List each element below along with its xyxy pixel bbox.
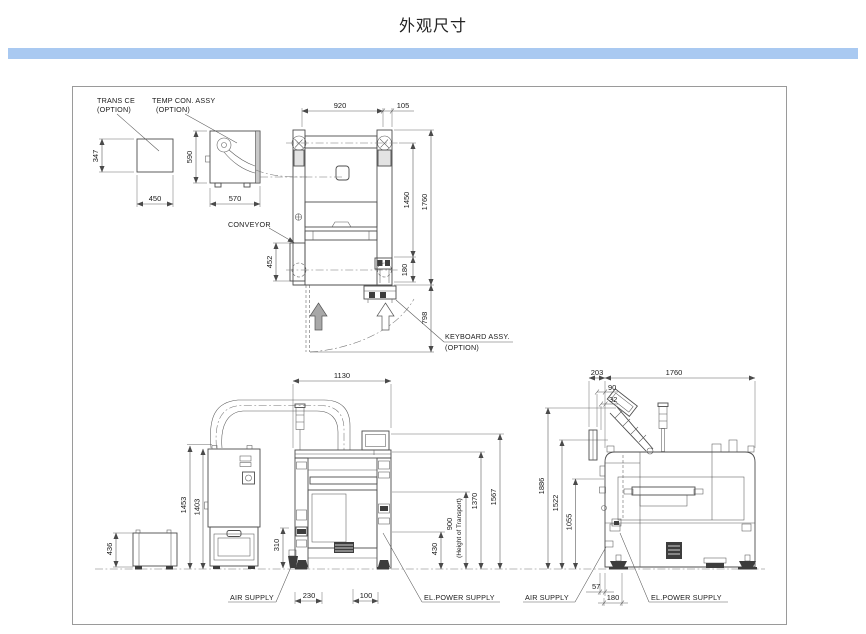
- dim-1760-side: 1760: [666, 368, 683, 377]
- dim-1522: 1522: [551, 495, 560, 512]
- keyboard-label: KEYBOARD ASSY.: [445, 332, 510, 341]
- dim-57: 57: [592, 582, 600, 591]
- dim-100: 100: [360, 591, 373, 600]
- dim-1453: 1453: [179, 497, 188, 514]
- trans-ce-label: TRANS CE: [97, 96, 135, 105]
- dim-347: 347: [91, 150, 100, 163]
- dim-1130: 1130: [334, 371, 350, 380]
- dim-1760-top: 1760: [420, 194, 429, 211]
- dim-590: 590: [185, 151, 194, 164]
- dim-1567: 1567: [489, 489, 498, 506]
- dim-90: 90: [608, 383, 616, 392]
- conveyor-label: CONVEYOR: [228, 220, 271, 229]
- keyboard-option-label: (OPTION): [445, 343, 479, 352]
- dim-430: 430: [430, 543, 439, 556]
- dim-180-side: 180: [607, 593, 620, 602]
- dimension-drawing-page: 外观尺寸 TRANS CE (OPTION) 347 450 TEMP CON.…: [0, 0, 866, 634]
- dim-310: 310: [272, 539, 281, 552]
- dim-230: 230: [303, 591, 316, 600]
- el-power-front-label: EL.POWER SUPPLY: [424, 593, 495, 602]
- dim-1450: 1450: [402, 192, 411, 209]
- dim-1370: 1370: [470, 493, 479, 510]
- dim-452: 452: [265, 256, 274, 269]
- dim-1055: 1055: [565, 514, 574, 531]
- dim-1403: 1403: [193, 499, 202, 516]
- dim-1886: 1886: [537, 478, 546, 495]
- dim-203: 203: [591, 368, 604, 377]
- temp-con-label: TEMP CON. ASSY: [152, 96, 215, 105]
- air-supply-front-label: AIR SUPPLY: [230, 593, 274, 602]
- temp-con-option-label: (OPTION): [156, 105, 190, 114]
- dim-105: 105: [397, 101, 410, 110]
- dimension-drawing: TRANS CE (OPTION) 347 450 TEMP CON. ASSY…: [0, 0, 866, 634]
- dim-180-top: 180: [400, 264, 409, 277]
- dim-32: 32: [609, 395, 617, 404]
- trans-ce-option-label: (OPTION): [97, 105, 131, 114]
- el-power-side-label: EL.POWER SUPPLY: [651, 593, 722, 602]
- dim-900: 900: [445, 518, 454, 531]
- dim-570: 570: [229, 194, 242, 203]
- dim-436: 436: [105, 543, 114, 556]
- air-supply-side-label: AIR SUPPLY: [525, 593, 569, 602]
- height-of-transport-note: (Height of Transport): [456, 498, 463, 558]
- dim-920: 920: [334, 101, 347, 110]
- dim-450: 450: [149, 194, 162, 203]
